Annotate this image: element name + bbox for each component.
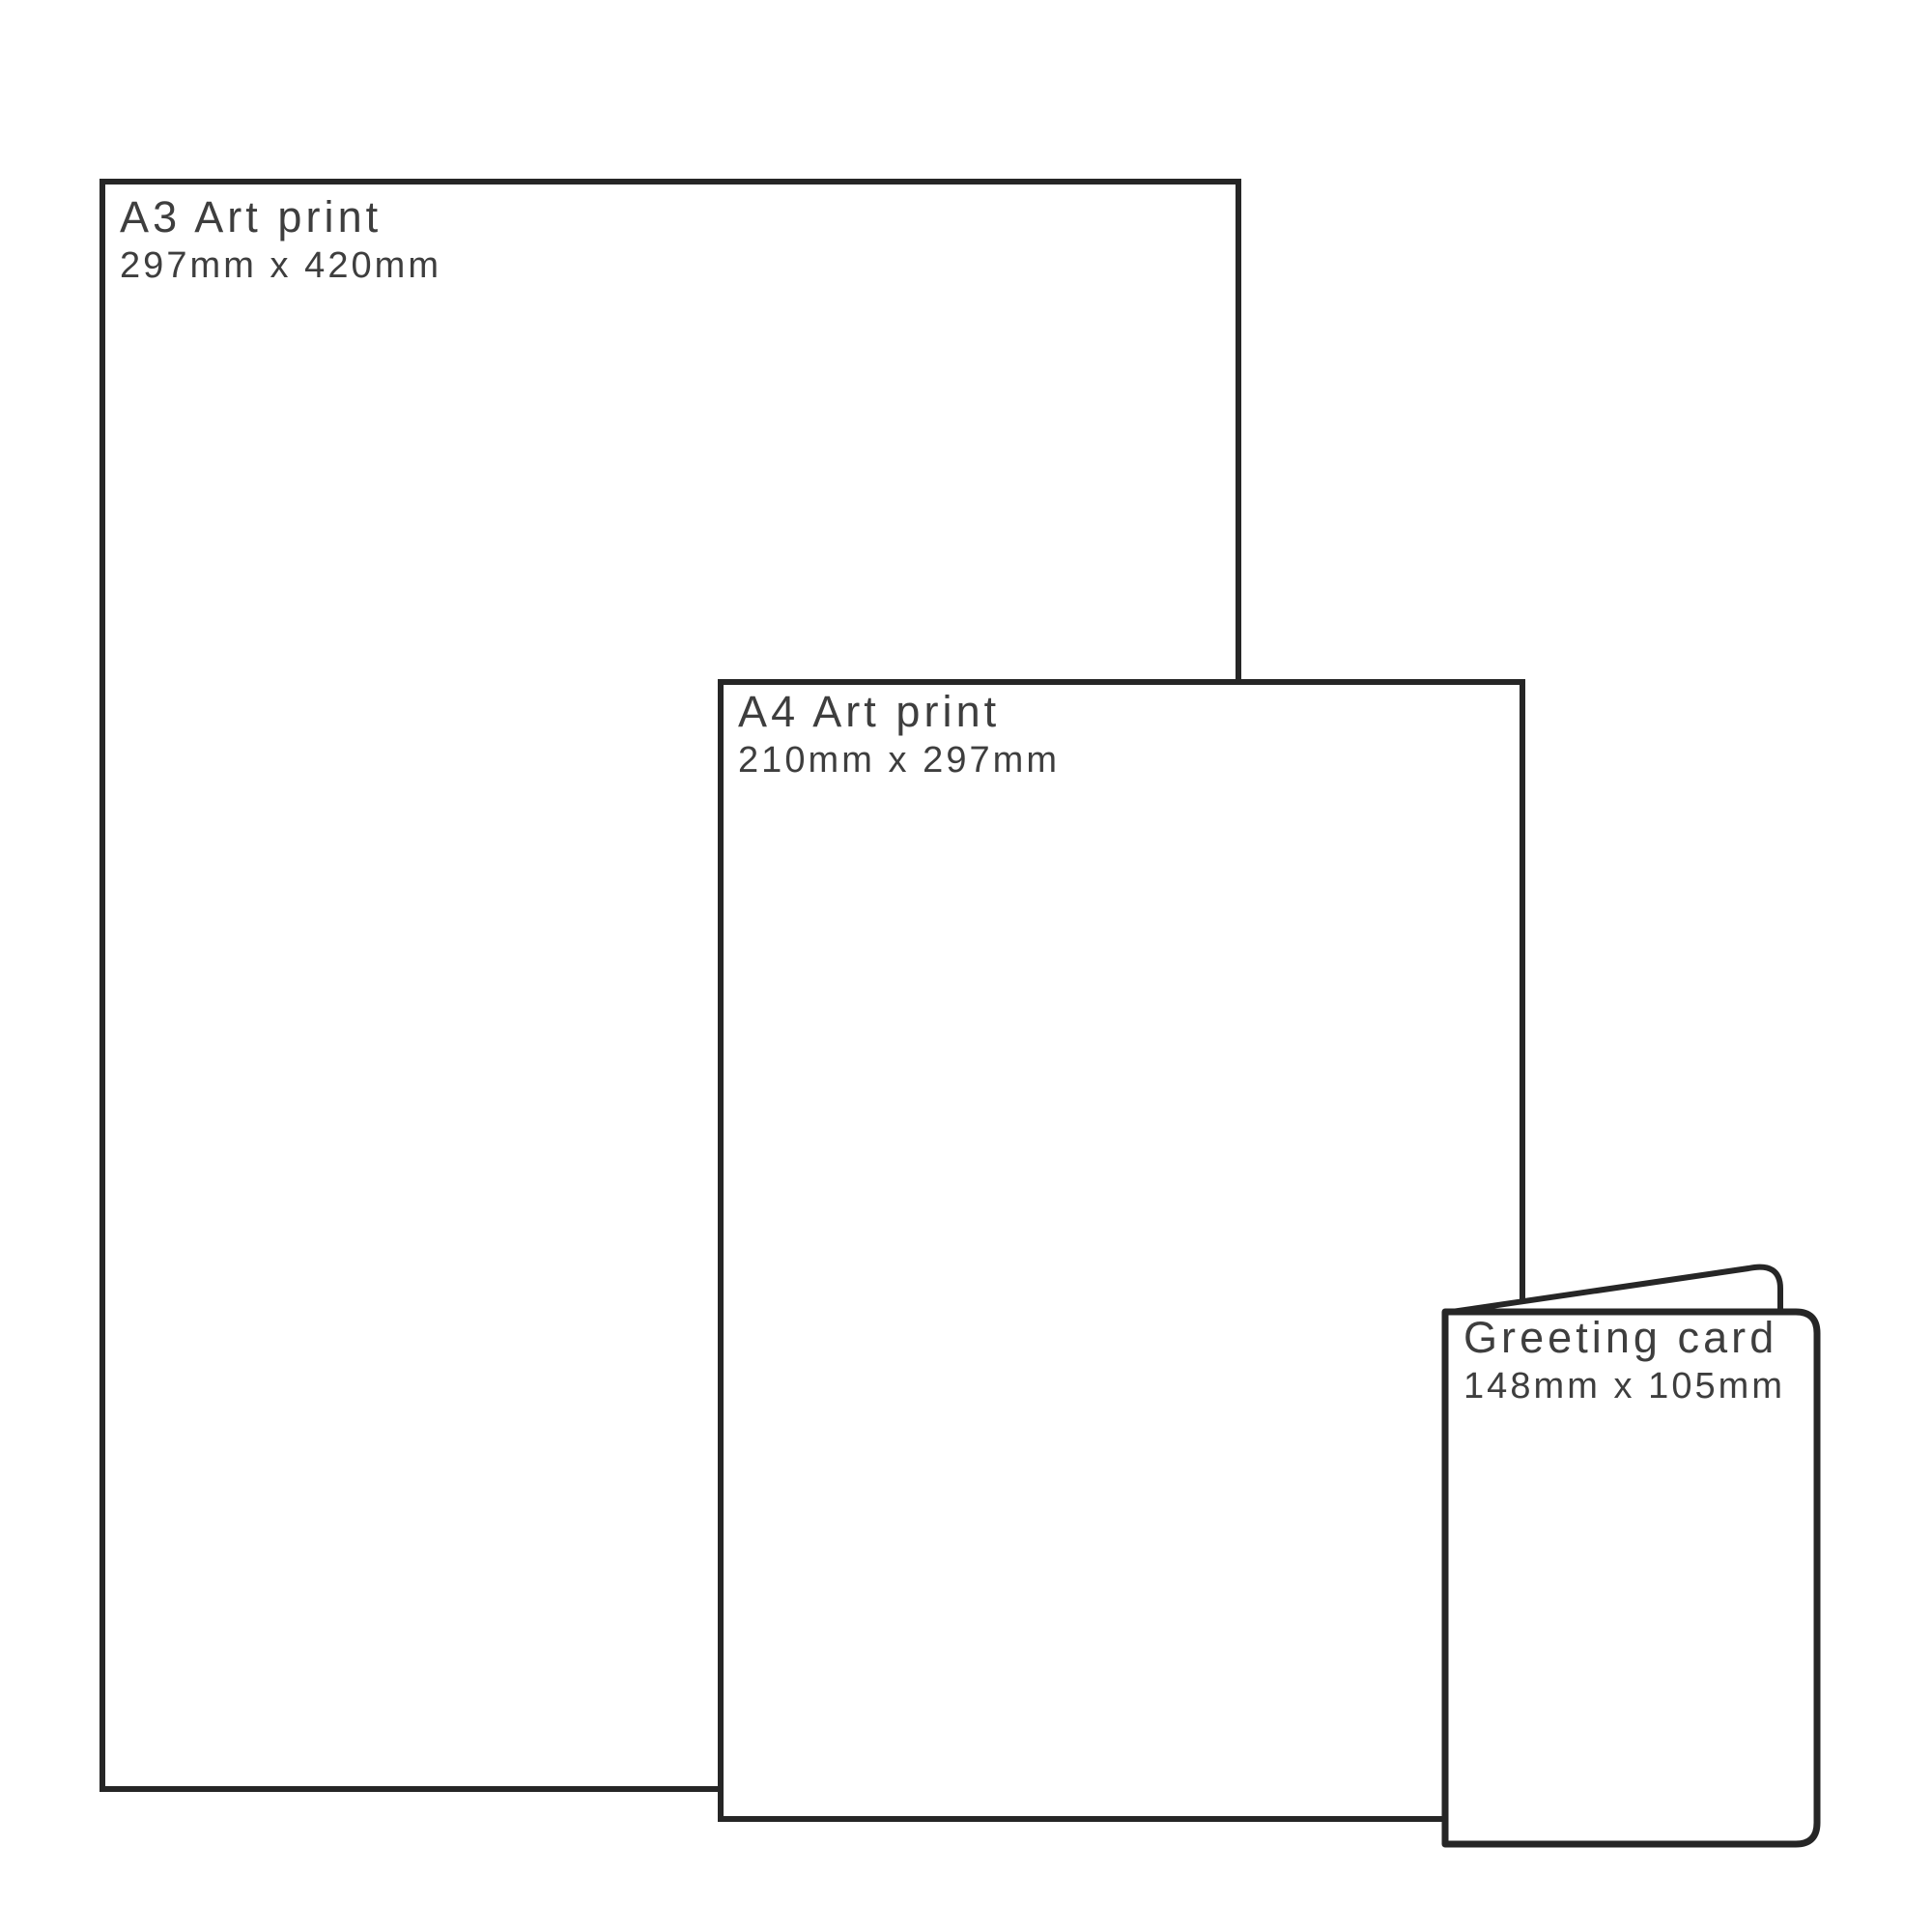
a4-print-outline [721,682,1522,1819]
greeting-card-front [1445,1312,1817,1844]
size-comparison-canvas [0,0,1932,1932]
size-comparison-diagram: A3 Art print 297mm x 420mm A4 Art print … [0,0,1932,1932]
